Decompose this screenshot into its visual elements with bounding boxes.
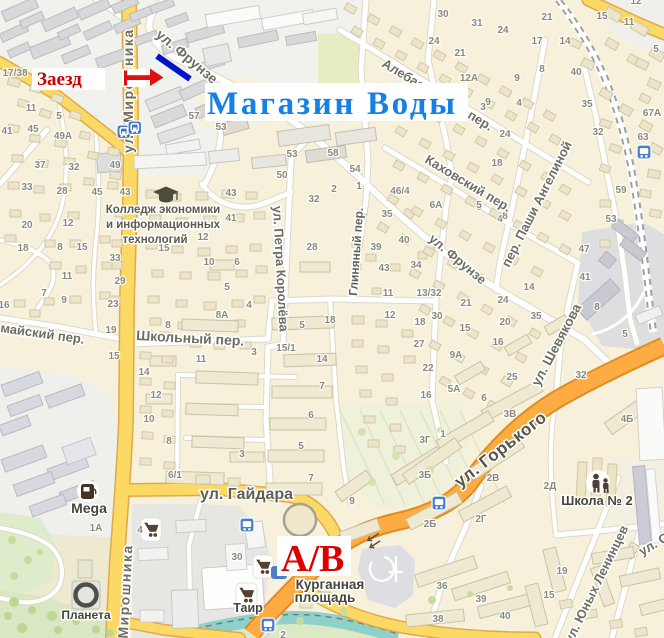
- svg-text:35: 35: [381, 209, 393, 220]
- svg-text:18: 18: [414, 317, 426, 328]
- svg-text:32: 32: [68, 162, 80, 173]
- svg-text:3Г: 3Г: [419, 435, 431, 446]
- svg-text:25: 25: [506, 372, 518, 383]
- svg-text:14: 14: [523, 282, 535, 293]
- svg-text:32: 32: [308, 194, 320, 205]
- svg-text:41: 41: [1, 126, 13, 137]
- svg-text:20: 20: [499, 317, 511, 328]
- svg-text:53: 53: [215, 122, 227, 133]
- svg-text:28: 28: [306, 242, 318, 253]
- svg-text:5А: 5А: [448, 384, 461, 395]
- svg-text:12: 12: [630, 0, 642, 7]
- svg-text:22: 22: [422, 363, 434, 374]
- svg-text:А/В: А/В: [281, 538, 344, 580]
- svg-text:12: 12: [384, 310, 396, 321]
- svg-text:9: 9: [61, 295, 67, 306]
- svg-text:15: 15: [459, 323, 471, 334]
- svg-text:17: 17: [531, 36, 543, 47]
- svg-text:7: 7: [41, 288, 47, 299]
- svg-text:8: 8: [166, 436, 172, 447]
- svg-text:4: 4: [516, 98, 522, 109]
- svg-text:39: 39: [370, 242, 382, 253]
- svg-text:5: 5: [622, 329, 628, 340]
- svg-text:5: 5: [299, 320, 305, 331]
- svg-text:32: 32: [575, 370, 587, 381]
- svg-text:47: 47: [578, 244, 590, 255]
- svg-text:6: 6: [481, 393, 487, 404]
- svg-text:Школа № 2: Школа № 2: [561, 493, 632, 508]
- svg-text:53: 53: [286, 149, 298, 160]
- svg-text:9: 9: [514, 73, 520, 84]
- svg-text:11: 11: [196, 354, 207, 365]
- svg-text:2Г: 2Г: [475, 514, 487, 525]
- svg-text:15: 15: [596, 11, 608, 22]
- svg-text:9: 9: [349, 496, 355, 507]
- svg-text:11: 11: [624, 17, 635, 28]
- svg-text:16: 16: [0, 300, 10, 311]
- svg-text:59: 59: [615, 185, 627, 196]
- svg-text:31: 31: [471, 18, 483, 29]
- svg-text:38: 38: [432, 614, 444, 625]
- svg-text:24: 24: [497, 295, 509, 306]
- svg-text:и информационных: и информационных: [106, 219, 221, 231]
- svg-text:58: 58: [327, 148, 339, 159]
- svg-text:46/4: 46/4: [390, 186, 410, 197]
- svg-text:5: 5: [298, 441, 304, 452]
- svg-text:5: 5: [56, 111, 62, 122]
- svg-text:43: 43: [119, 187, 131, 198]
- svg-text:8: 8: [57, 242, 63, 253]
- svg-text:15: 15: [543, 590, 555, 601]
- svg-text:2Б: 2Б: [424, 519, 437, 530]
- svg-text:40: 40: [570, 67, 582, 78]
- svg-text:19: 19: [556, 566, 568, 577]
- svg-text:3Б: 3Б: [419, 470, 432, 481]
- svg-text:40: 40: [398, 235, 410, 246]
- svg-text:16: 16: [420, 390, 432, 401]
- svg-text:14: 14: [138, 367, 150, 378]
- svg-text:8: 8: [594, 302, 600, 313]
- svg-text:17/38: 17/38: [2, 68, 27, 79]
- svg-text:7: 7: [308, 473, 314, 484]
- svg-text:10: 10: [203, 257, 215, 268]
- svg-text:5: 5: [653, 44, 659, 55]
- svg-text:18: 18: [17, 243, 29, 254]
- svg-text:32: 32: [592, 127, 604, 138]
- svg-text:18: 18: [491, 158, 503, 169]
- svg-text:15/1: 15/1: [276, 343, 296, 354]
- svg-text:Mega: Mega: [71, 500, 107, 516]
- svg-text:1А: 1А: [90, 523, 103, 534]
- svg-text:30: 30: [231, 552, 243, 563]
- svg-text:21: 21: [541, 12, 553, 23]
- svg-text:Магазин Воды: Магазин Воды: [207, 86, 455, 122]
- svg-text:3В: 3В: [504, 409, 517, 420]
- svg-text:4Б: 4Б: [621, 414, 634, 425]
- svg-text:27: 27: [413, 339, 425, 350]
- svg-text:45: 45: [27, 124, 39, 135]
- svg-text:8А: 8А: [216, 310, 229, 321]
- svg-text:4: 4: [246, 300, 252, 311]
- svg-text:33: 33: [21, 182, 33, 193]
- svg-text:30: 30: [431, 311, 443, 322]
- svg-text:30: 30: [437, 9, 449, 20]
- svg-text:40: 40: [499, 611, 511, 622]
- svg-text:28: 28: [56, 186, 68, 197]
- svg-text:6А: 6А: [430, 200, 443, 211]
- svg-text:24: 24: [497, 25, 509, 36]
- svg-text:9: 9: [485, 97, 491, 108]
- svg-text:35: 35: [581, 99, 593, 110]
- svg-text:12: 12: [150, 390, 162, 401]
- svg-text:19: 19: [105, 325, 117, 336]
- svg-text:29: 29: [114, 276, 126, 287]
- svg-text:49А: 49А: [54, 131, 72, 142]
- svg-text:2: 2: [331, 184, 337, 195]
- svg-text:7: 7: [319, 381, 325, 392]
- svg-text:Таир: Таир: [233, 601, 263, 615]
- svg-text:11: 11: [62, 271, 73, 282]
- svg-text:41: 41: [225, 213, 237, 224]
- svg-text:16: 16: [492, 337, 504, 348]
- svg-text:24: 24: [499, 129, 511, 140]
- svg-text:13/32: 13/32: [416, 288, 441, 299]
- svg-text:33: 33: [109, 253, 121, 264]
- svg-text:15: 15: [108, 351, 120, 362]
- svg-text:12А: 12А: [460, 73, 478, 84]
- svg-text:2В: 2В: [487, 473, 500, 484]
- svg-text:39: 39: [475, 594, 487, 605]
- svg-text:Колледж экономики: Колледж экономики: [106, 204, 220, 216]
- svg-text:43: 43: [378, 263, 390, 274]
- svg-text:23: 23: [107, 299, 119, 310]
- svg-text:14: 14: [316, 354, 328, 365]
- svg-text:18: 18: [324, 315, 336, 326]
- svg-text:20: 20: [21, 220, 33, 231]
- svg-text:1: 1: [356, 181, 362, 192]
- svg-text:11: 11: [383, 288, 394, 299]
- svg-text:15: 15: [76, 242, 88, 253]
- svg-text:21: 21: [460, 298, 472, 309]
- svg-text:9А: 9А: [450, 350, 463, 361]
- svg-text:54: 54: [349, 164, 361, 175]
- svg-text:57: 57: [188, 111, 200, 122]
- svg-text:53: 53: [605, 214, 617, 225]
- svg-text:21: 21: [454, 48, 466, 59]
- svg-text:Заезд: Заезд: [37, 69, 82, 90]
- svg-text:37: 37: [34, 160, 46, 171]
- svg-text:8: 8: [539, 64, 545, 75]
- svg-text:43: 43: [225, 188, 237, 199]
- svg-text:3: 3: [239, 449, 245, 460]
- svg-text:12: 12: [62, 218, 74, 229]
- svg-text:2Д: 2Д: [544, 481, 557, 492]
- svg-text:технологий: технологий: [122, 234, 187, 246]
- svg-text:Планета: Планета: [61, 608, 111, 622]
- svg-text:1: 1: [440, 429, 446, 440]
- svg-text:63: 63: [637, 132, 649, 143]
- svg-text:4: 4: [137, 525, 143, 536]
- svg-text:14: 14: [559, 36, 571, 47]
- svg-text:12: 12: [197, 232, 209, 243]
- svg-text:49: 49: [109, 160, 121, 171]
- svg-text:41: 41: [579, 272, 591, 283]
- svg-text:67А: 67А: [643, 108, 661, 119]
- svg-text:45: 45: [91, 187, 103, 198]
- svg-text:10: 10: [143, 414, 155, 425]
- svg-text:36: 36: [436, 581, 448, 592]
- svg-text:6: 6: [234, 257, 240, 268]
- svg-text:6/1: 6/1: [168, 470, 182, 481]
- svg-text:35: 35: [530, 311, 542, 322]
- svg-text:6: 6: [308, 410, 314, 421]
- svg-text:34: 34: [410, 260, 422, 271]
- svg-text:5: 5: [476, 200, 482, 211]
- svg-text:2: 2: [280, 630, 286, 638]
- svg-text:5: 5: [224, 282, 230, 293]
- svg-text:11: 11: [26, 103, 37, 114]
- svg-text:ул. Гайдара: ул. Гайдара: [200, 486, 293, 503]
- svg-text:3: 3: [251, 347, 257, 358]
- svg-text:площадь: площадь: [295, 590, 356, 605]
- svg-text:24: 24: [428, 36, 440, 47]
- svg-text:50: 50: [276, 170, 288, 181]
